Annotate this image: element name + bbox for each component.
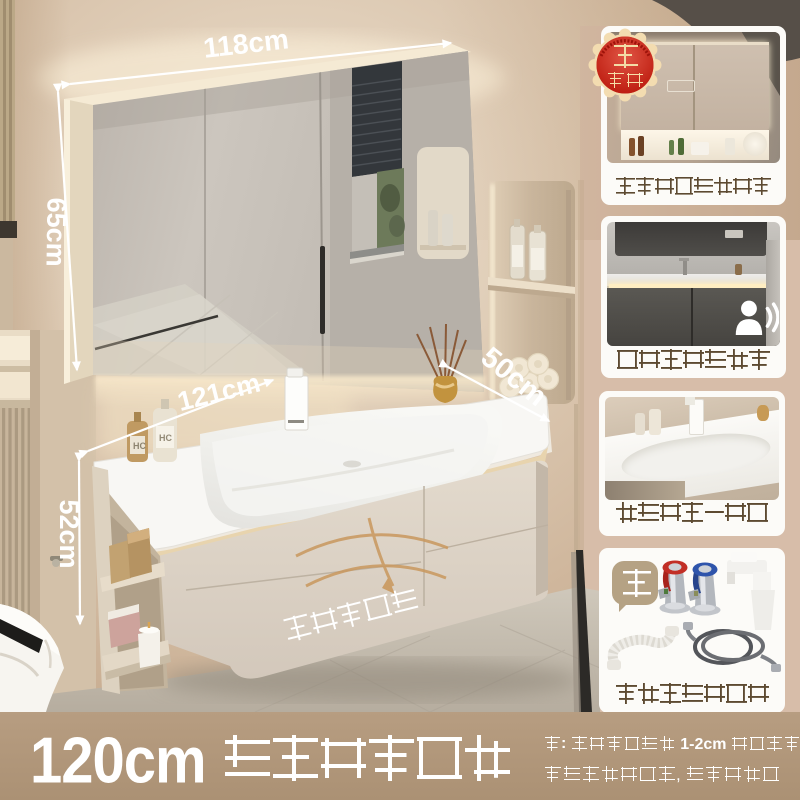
svg-text:52cm: 52cm [54,499,84,568]
svg-text:65cm: 65cm [40,197,71,267]
svg-text:HC: HC [133,441,146,451]
svg-text:HC: HC [159,433,172,443]
